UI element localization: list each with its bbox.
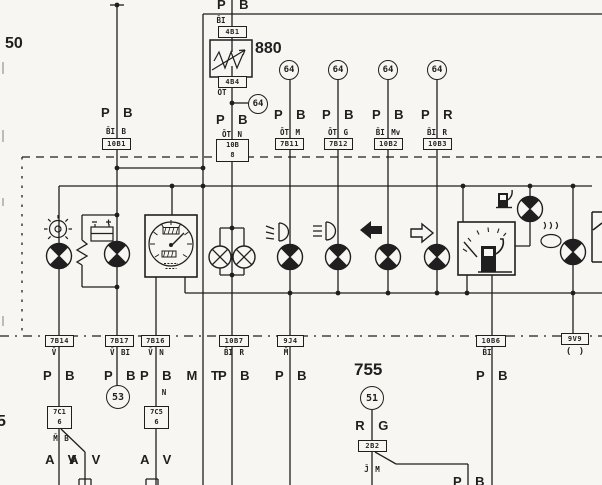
connector-7B16: 7B16 <box>141 335 170 347</box>
connector-7B12: 7B12 <box>324 138 353 150</box>
wire-code: ŌT G <box>318 129 358 137</box>
schematic-drawing <box>0 0 602 485</box>
connector-10B1: 10B1 <box>102 138 131 150</box>
component-ref-circle-51: 51 <box>360 386 384 410</box>
wire-colors: P B <box>368 108 408 121</box>
wire-colors: P B <box>97 106 137 119</box>
arrow-left-icon <box>360 221 382 239</box>
wire-colors: P B <box>213 0 253 11</box>
wire-code: V̄ <box>42 349 66 357</box>
sheet-ref-50: 50 <box>5 36 23 52</box>
wire-code: B̄I <box>470 349 504 357</box>
partial-box-right <box>592 212 602 262</box>
wire-code: B̄I B <box>96 128 136 136</box>
wire-code: V̄ N <box>136 349 176 357</box>
wire-colors: P B <box>270 108 310 121</box>
choke-oval-icon <box>541 222 561 248</box>
wire-code: B̄I <box>212 17 230 25</box>
wire-ref-circle-64: 64 <box>427 60 447 80</box>
wire-colors: P B <box>136 369 176 382</box>
wire-colors: R G <box>352 419 392 432</box>
speedometer-gauge-icon <box>145 215 197 277</box>
dimmer-rheostat-box <box>210 40 252 77</box>
brake-warning-icon <box>44 215 72 239</box>
wire-code: ( ) <box>558 348 592 357</box>
low-fuel-warning-lamp-icon <box>518 197 543 222</box>
connector-10B-8: 10B 8 <box>216 139 249 162</box>
connector-line2: 8 <box>230 151 234 160</box>
connector-4B4: 4B4 <box>218 76 247 88</box>
connector-9V9: 9V9 <box>561 333 589 345</box>
charge-warning-lamp-icon <box>105 242 130 267</box>
sheet-ref-5: 5 <box>0 414 6 430</box>
connector-line2: 6 <box>57 418 61 427</box>
connector-line1: 10B <box>226 141 239 150</box>
turn-right-indicator-icon <box>425 245 450 270</box>
component-ref-circle-53: 53 <box>106 385 130 409</box>
wire-code: ŌT N <box>212 131 252 139</box>
wire-colors: P B <box>449 475 489 485</box>
connector-10B2: 10B2 <box>374 138 403 150</box>
wire-code: M̄ B <box>41 435 81 443</box>
arrow-right-icon <box>411 224 433 242</box>
wire-code: B̄I R <box>417 129 457 137</box>
connector-7C1-6: 7C1 6 <box>47 406 72 429</box>
wire-ref-circle-64: 64 <box>279 60 299 80</box>
component-ref-755: 755 <box>354 361 382 378</box>
connector-7B11: 7B11 <box>275 138 304 150</box>
wire-ref-circle-64: 64 <box>378 60 398 80</box>
turn-left-indicator-icon <box>376 245 401 270</box>
connector-2B2: 2B2 <box>358 440 387 452</box>
choke-warning-lamp-icon <box>561 240 586 265</box>
connector-10B6: 10B6 <box>476 335 506 347</box>
connector-10B7: 10B7 <box>219 335 249 347</box>
brake-warning-lamp-icon <box>47 244 72 269</box>
wire-colors: P B <box>100 369 140 382</box>
connector-9J4: 9J4 <box>277 335 304 347</box>
wire-code: B̄I Mv <box>368 129 408 137</box>
wire-code: J̄ M <box>352 466 392 474</box>
wire-code: V̄ BI <box>100 349 140 357</box>
connector-line1: 7C1 <box>53 408 66 417</box>
wire-colors: P R <box>417 108 457 121</box>
connector-line1: 7C5 <box>150 408 163 417</box>
wiring-diagram-sheet: 50 5 P B B̄I B 10B1 P B B̄I 4B1 880 4B4 … <box>0 0 602 485</box>
component-ref-880: 880 <box>255 41 282 57</box>
wire-colors: P B <box>472 369 512 382</box>
wire-code: M̄ <box>274 349 298 357</box>
wire-code: N <box>158 389 170 397</box>
connector-10B3: 10B3 <box>423 138 452 150</box>
wire-colors: P B <box>271 369 311 382</box>
panel-bulb-icon <box>233 246 255 268</box>
wire-code: B̄I R <box>214 349 254 357</box>
wire-colors: P B <box>39 369 79 382</box>
wire-ref-circle-64: 64 <box>248 94 268 114</box>
fog-lamp-indicator-icon <box>278 245 303 270</box>
wire-code: ŌT <box>213 89 231 97</box>
wire-colors: P B <box>212 113 252 126</box>
panel-bulb-icon <box>209 246 231 268</box>
high-beam-icon <box>313 222 336 240</box>
wire-colors: P B <box>318 108 358 121</box>
wire-code: ŌT M <box>270 129 310 137</box>
connector-7C5-6: 7C5 6 <box>144 406 169 429</box>
fuel-gauge-icon <box>458 222 515 275</box>
wire-colors: A V <box>136 453 176 466</box>
wire-colors: P B <box>214 369 254 382</box>
connector-line2: 6 <box>154 418 158 427</box>
battery-icon <box>91 220 113 242</box>
fuel-pump-icon <box>496 190 512 208</box>
connector-7B14: 7B14 <box>45 335 74 347</box>
connector-4B1: 4B1 <box>218 26 247 38</box>
connector-7B17: 7B17 <box>105 335 134 347</box>
high-beam-indicator-icon <box>326 245 351 270</box>
wire-ref-circle-64: 64 <box>328 60 348 80</box>
fog-light-icon <box>266 223 289 241</box>
wire-colors: A V <box>65 453 105 466</box>
